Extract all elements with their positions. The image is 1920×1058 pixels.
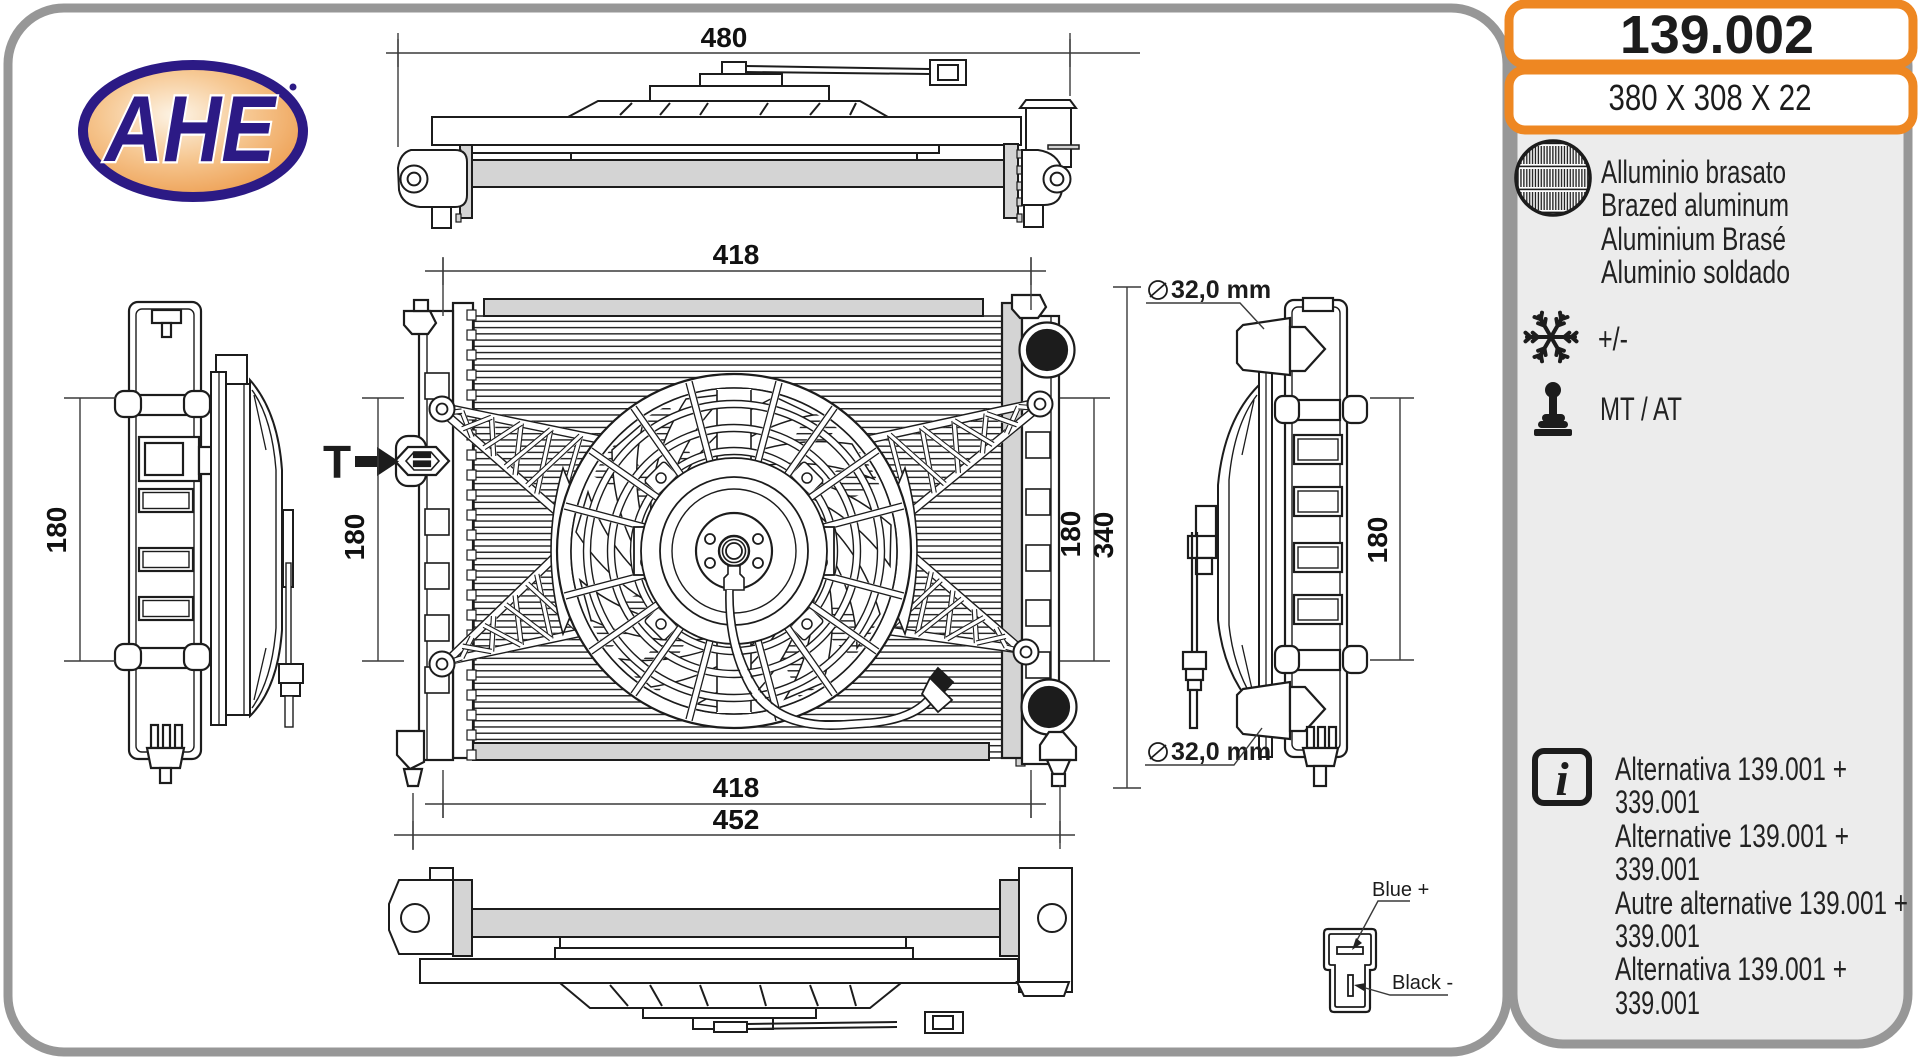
svg-text:180: 180 xyxy=(339,514,370,561)
svg-text:418: 418 xyxy=(713,772,760,803)
svg-text:339.001: 339.001 xyxy=(1615,851,1700,887)
svg-text:480: 480 xyxy=(701,22,748,53)
svg-text:Black -: Black - xyxy=(1392,972,1453,994)
svg-text:418: 418 xyxy=(713,239,760,270)
svg-text:i: i xyxy=(1555,753,1569,806)
svg-text:32,0 mm: 32,0 mm xyxy=(1171,276,1271,304)
svg-text:380 X 308 X 22: 380 X 308 X 22 xyxy=(1609,77,1812,118)
svg-text:452: 452 xyxy=(713,804,760,835)
svg-text:Alternativa 139.001 +: Alternativa 139.001 + xyxy=(1615,751,1847,787)
svg-text:340: 340 xyxy=(1088,512,1119,559)
svg-text:T: T xyxy=(323,436,351,488)
svg-text:32,0 mm: 32,0 mm xyxy=(1171,738,1271,766)
svg-text:MT / AT: MT / AT xyxy=(1600,391,1682,427)
svg-text:+/-: +/- xyxy=(1598,321,1628,357)
svg-text:Blue +: Blue + xyxy=(1372,879,1429,901)
svg-text:180: 180 xyxy=(1055,511,1086,558)
svg-text:180: 180 xyxy=(41,507,72,554)
svg-text:Aluminio soldado: Aluminio soldado xyxy=(1601,254,1790,290)
svg-text:Alluminio brasato: Alluminio brasato xyxy=(1601,154,1786,190)
svg-text:Aluminium Brasé: Aluminium Brasé xyxy=(1601,221,1786,257)
svg-text:339.001: 339.001 xyxy=(1615,918,1700,954)
svg-text:139.002: 139.002 xyxy=(1620,5,1814,65)
svg-text:Alternative 139.001 +: Alternative 139.001 + xyxy=(1615,818,1849,854)
svg-text:Brazed aluminum: Brazed aluminum xyxy=(1601,187,1789,223)
svg-text:339.001: 339.001 xyxy=(1615,784,1700,820)
svg-text:AHE: AHE xyxy=(103,76,278,181)
svg-text:Autre alternative 139.001 +: Autre alternative 139.001 + xyxy=(1615,885,1908,921)
svg-text:180: 180 xyxy=(1362,517,1393,564)
svg-text:Alternativa 139.001 +: Alternativa 139.001 + xyxy=(1615,951,1847,987)
svg-text:339.001: 339.001 xyxy=(1615,985,1700,1021)
